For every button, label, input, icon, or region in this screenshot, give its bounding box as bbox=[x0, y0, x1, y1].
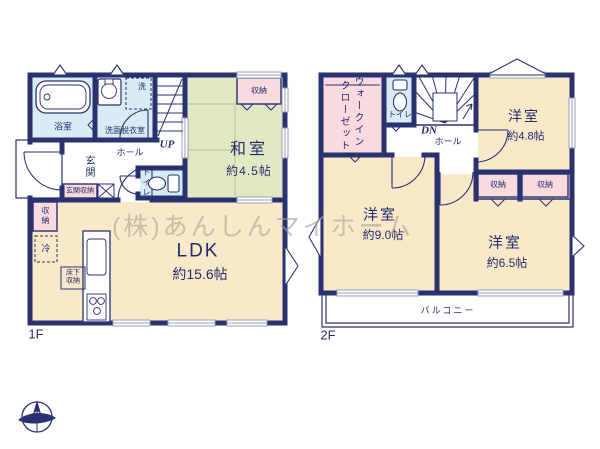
kitchen-counter-icon bbox=[83, 231, 110, 322]
label-floor2: 2F bbox=[320, 329, 335, 342]
label-room65: 洋室 bbox=[488, 236, 522, 251]
label-washitsu-size: 約4.5帖 bbox=[226, 165, 272, 177]
label-balcony: バルコニー bbox=[421, 307, 476, 316]
label-washitsu: 和室 bbox=[230, 142, 268, 158]
company-watermark: (株)あんしんマイホーム bbox=[112, 207, 414, 243]
floorplan-canvas: 浴室 洗面脱衣室 洗 UP 玄関 玄関収納 ホール トイレ 和室 約4.5帖 収… bbox=[0, 0, 600, 449]
label-toilet-1f: トイレ bbox=[142, 168, 150, 198]
label-toilet-2f: トイレ bbox=[388, 111, 412, 119]
label-wic-line1: ウォークイン bbox=[352, 76, 362, 148]
label-storage-b: 収納 bbox=[537, 181, 553, 189]
compass-icon bbox=[18, 400, 56, 432]
label-ldk-storage: 収納 bbox=[41, 206, 49, 226]
label-stairs-up: UP bbox=[160, 140, 175, 151]
label-ldk-size: 約15.6帖 bbox=[172, 267, 227, 281]
label-storage-a: 収納 bbox=[490, 181, 506, 189]
washbasin-icon bbox=[98, 79, 121, 105]
label-hall-2f: ホール bbox=[434, 138, 461, 147]
label-fridge: 冷 bbox=[41, 245, 50, 254]
label-ldk: LDK bbox=[177, 242, 220, 261]
label-hall-1f: ホール bbox=[116, 149, 143, 158]
label-wic-line2: クローゼット bbox=[338, 80, 348, 152]
stairs-up-icon bbox=[157, 79, 183, 136]
label-underfloor-storage: 床下収納 bbox=[65, 270, 82, 287]
shoe-box-x bbox=[98, 184, 114, 198]
label-washroom: 洗面脱衣室 bbox=[105, 127, 145, 135]
label-room48-size: 約4.8帖 bbox=[507, 132, 544, 143]
stairs-down-icon bbox=[414, 75, 474, 123]
label-washitsu-storage: 収納 bbox=[251, 87, 267, 95]
label-floor1: 1F bbox=[28, 328, 43, 341]
label-laundry: 洗 bbox=[138, 83, 146, 91]
toilet-2f-icon bbox=[393, 80, 407, 111]
label-stairs-down: DN bbox=[421, 126, 437, 137]
bathtub-icon bbox=[36, 81, 90, 113]
label-entrance: 玄関 bbox=[83, 155, 93, 179]
label-entrance-storage: 玄関収納 bbox=[66, 188, 94, 195]
label-room48: 洋室 bbox=[508, 109, 540, 123]
label-bathroom: 浴室 bbox=[54, 123, 72, 132]
label-room65-size: 約6.5帖 bbox=[487, 257, 528, 269]
